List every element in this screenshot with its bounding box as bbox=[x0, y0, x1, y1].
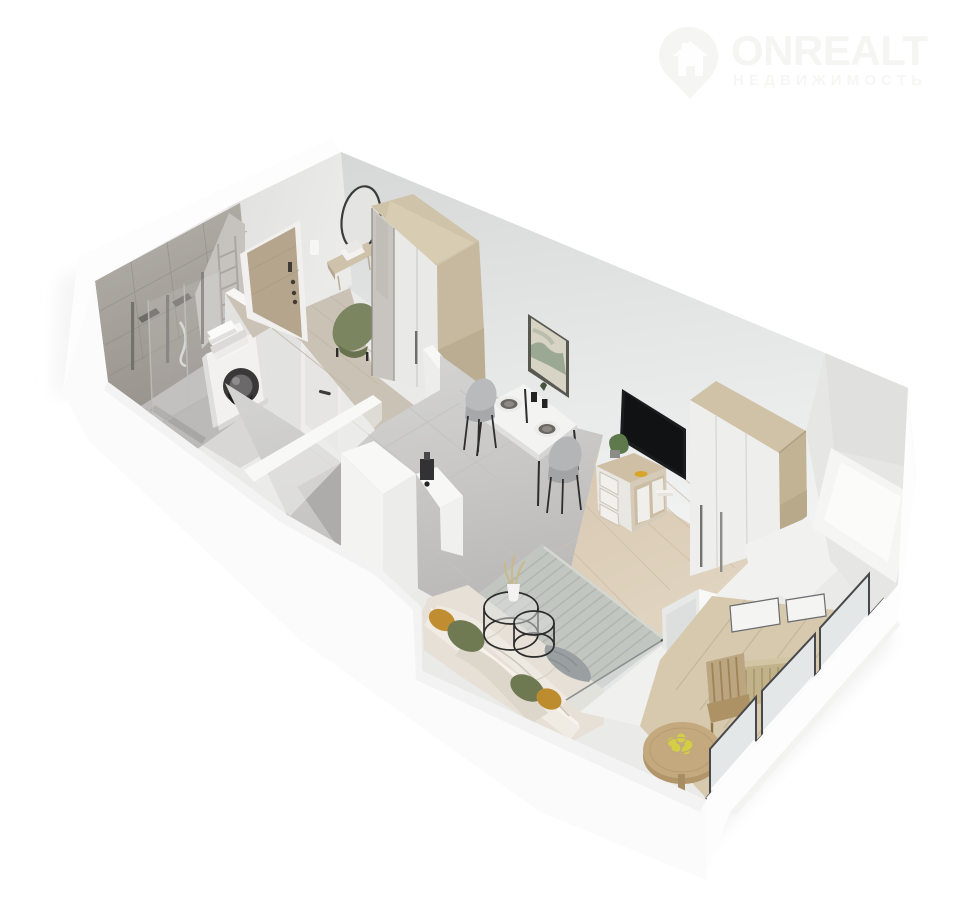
svg-text:НЕДВИЖИМОСТЬ: НЕДВИЖИМОСТЬ bbox=[733, 72, 927, 89]
svg-text:ONREALT: ONREALT bbox=[731, 27, 931, 74]
